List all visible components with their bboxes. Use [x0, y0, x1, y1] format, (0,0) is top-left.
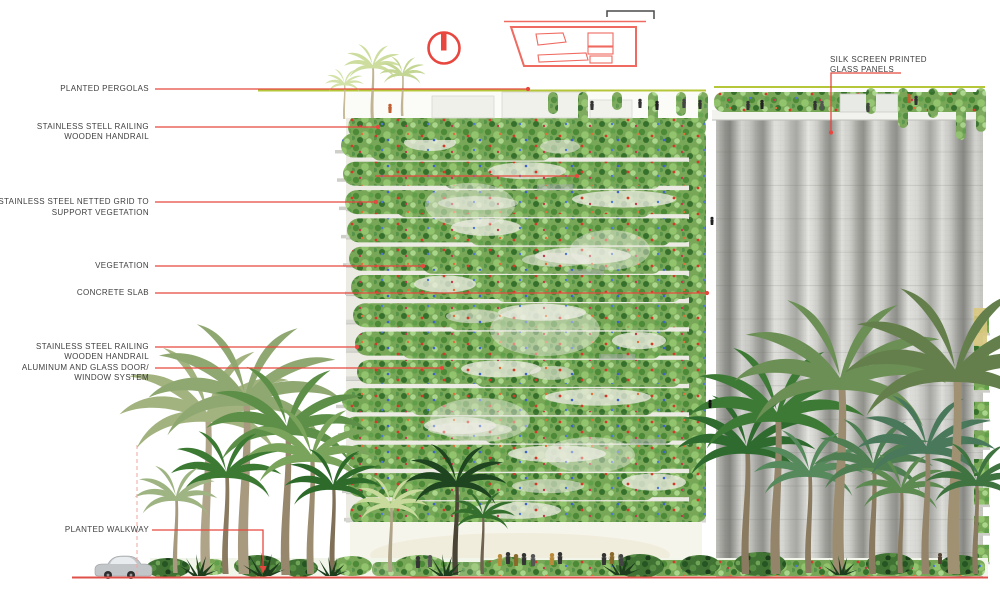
label-planted-walkway: PLANTED WALKWAY	[0, 525, 149, 536]
car	[95, 556, 152, 579]
label-silk-screen-glass: SILK SCREEN PRINTED GLASS PANELS	[830, 55, 927, 76]
key-plan-diagram	[504, 22, 646, 67]
label-vegetation: VEGETATION	[0, 261, 149, 272]
label-planted-pergolas: PLANTED PERGOLAS	[0, 84, 149, 95]
elevation-sheet: PLANTED PERGOLAS STAINLESS STELL RAILING…	[0, 0, 1000, 589]
label-railing-handrail-mid: STAINLESS STEEL RAILING WOODEN HANDRAIL	[0, 342, 149, 363]
section-marker-icon	[429, 33, 460, 64]
label-concrete-slab: CONCRETE SLAB	[0, 288, 149, 299]
label-aluminum-glass-door: ALUMINUM AND GLASS DOOR/ WINDOW SYSTEM	[0, 363, 149, 384]
concrete-tower	[712, 87, 990, 577]
scale-bracket-icon	[607, 11, 654, 19]
label-railing-handrail-top: STAINLESS STELL RAILING WOODEN HANDRAIL	[0, 122, 149, 143]
label-netted-grid: STAINLESS STEEL NETTED GRID TO SUPPORT V…	[0, 197, 149, 218]
elevation-rendering	[0, 0, 1000, 589]
